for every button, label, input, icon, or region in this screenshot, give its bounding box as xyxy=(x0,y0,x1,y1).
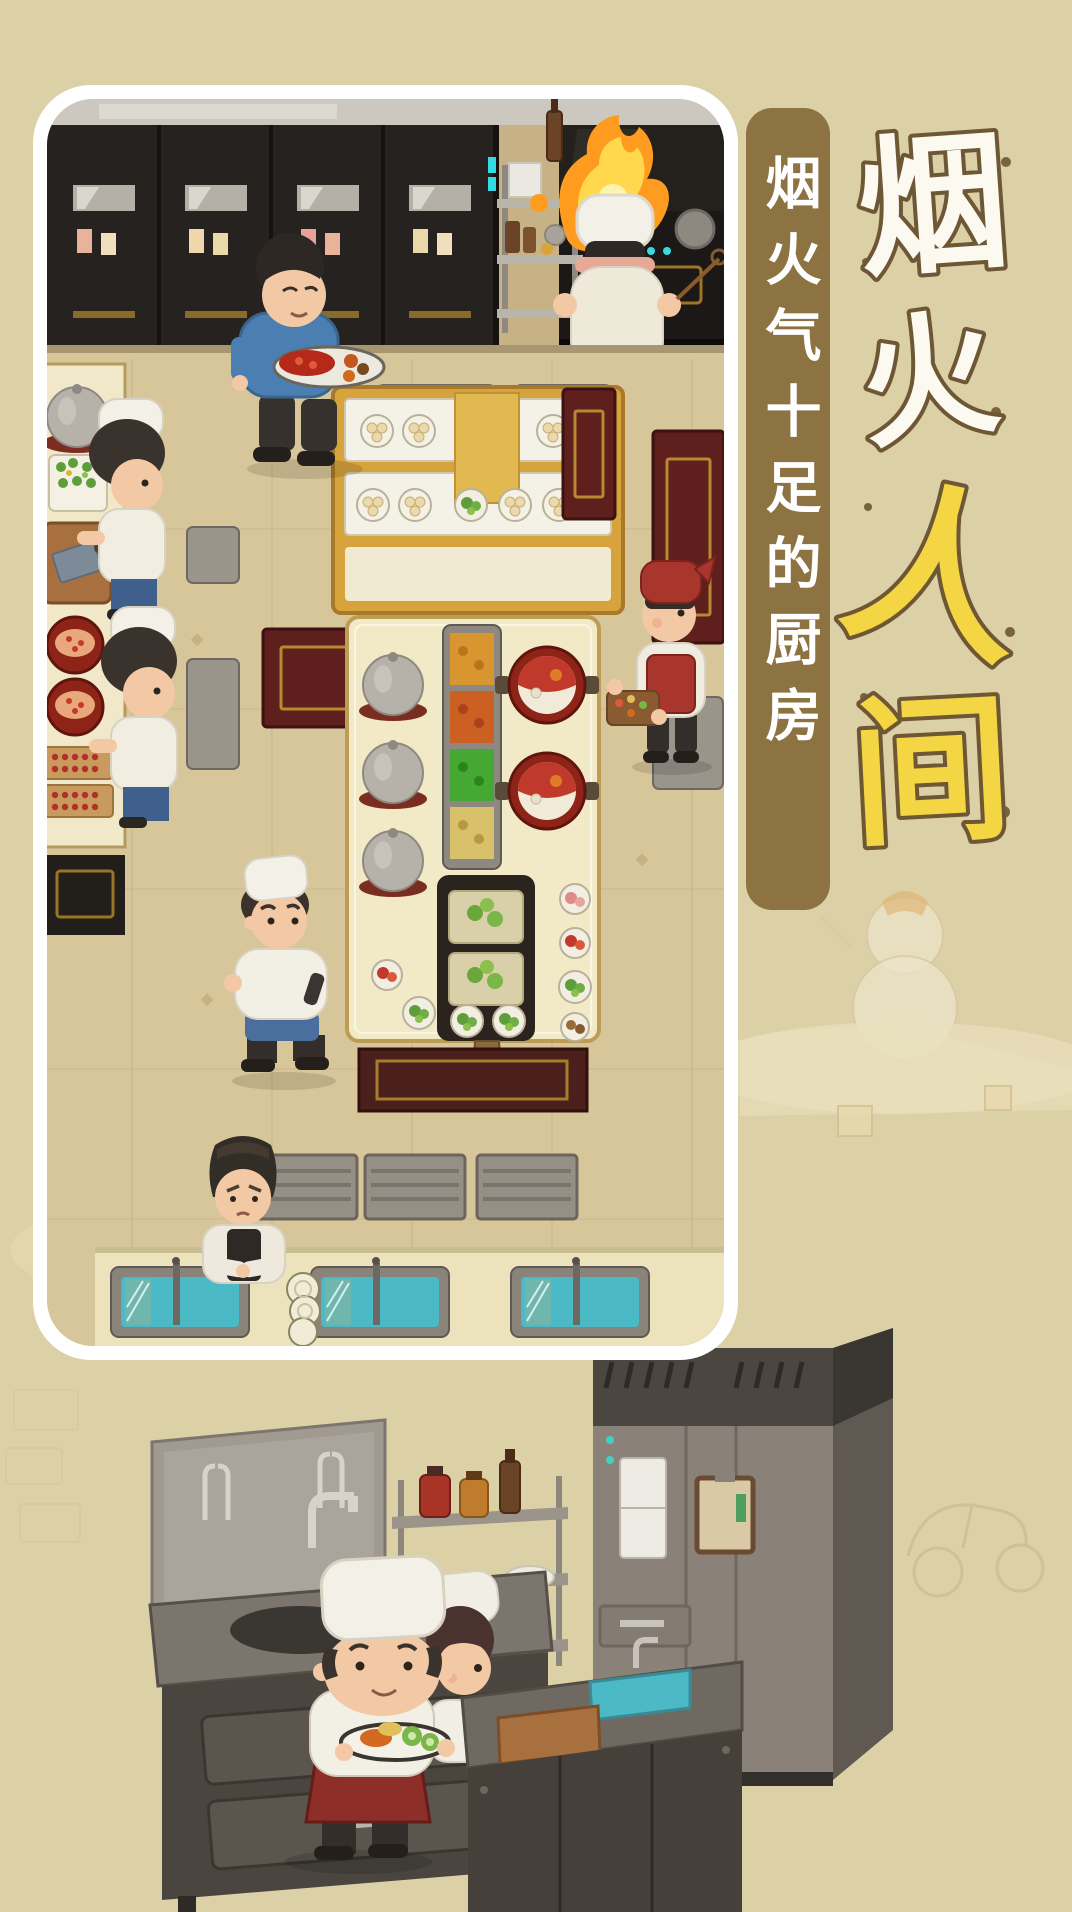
game-screenshot-frame xyxy=(33,85,738,1360)
range-hood xyxy=(47,99,724,125)
title-char-3: 人 xyxy=(828,454,1043,693)
game-scene-wrap xyxy=(47,99,724,1346)
clipboard-icon xyxy=(697,1472,753,1552)
title-char-2: 火 xyxy=(848,291,1007,470)
subtitle-banner: 烟火气十足的厨房 xyxy=(746,108,830,910)
title-char-4: 间 xyxy=(846,674,1016,869)
banner-text: 烟火气十足的厨房 xyxy=(760,154,816,910)
wash-sinks xyxy=(95,1247,724,1346)
ingredient-rack xyxy=(443,625,501,869)
hotpot-platter xyxy=(274,347,384,387)
red-jar xyxy=(420,1475,450,1517)
amber-jar xyxy=(460,1479,488,1517)
plate-stack xyxy=(287,1273,320,1346)
wall-shutters xyxy=(257,1155,577,1219)
fridge-indicator-light xyxy=(606,1436,614,1444)
sauce-bottle xyxy=(500,1461,520,1513)
game-title: 烟 火 人 间 xyxy=(828,112,1043,872)
chef-hat xyxy=(320,1555,446,1641)
center-island xyxy=(347,617,599,1111)
bottom-kitchen-scene xyxy=(150,1328,893,1912)
game-scene xyxy=(47,99,724,1346)
scooter-doodle xyxy=(908,1505,1043,1596)
title-char-1: 烟 xyxy=(852,115,1014,299)
